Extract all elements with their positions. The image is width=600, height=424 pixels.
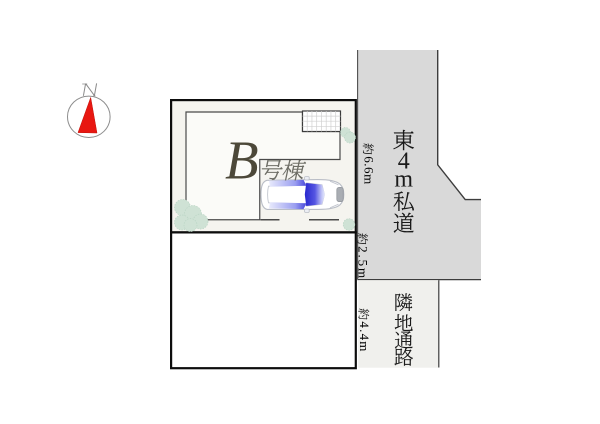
svg-text:2.5m: 2.5m (356, 246, 371, 278)
svg-text:m: m (394, 167, 413, 193)
svg-text:4.4m: 4.4m (357, 321, 372, 351)
svg-text:6.6m: 6.6m (361, 156, 376, 184)
svg-text:B: B (225, 129, 259, 190)
